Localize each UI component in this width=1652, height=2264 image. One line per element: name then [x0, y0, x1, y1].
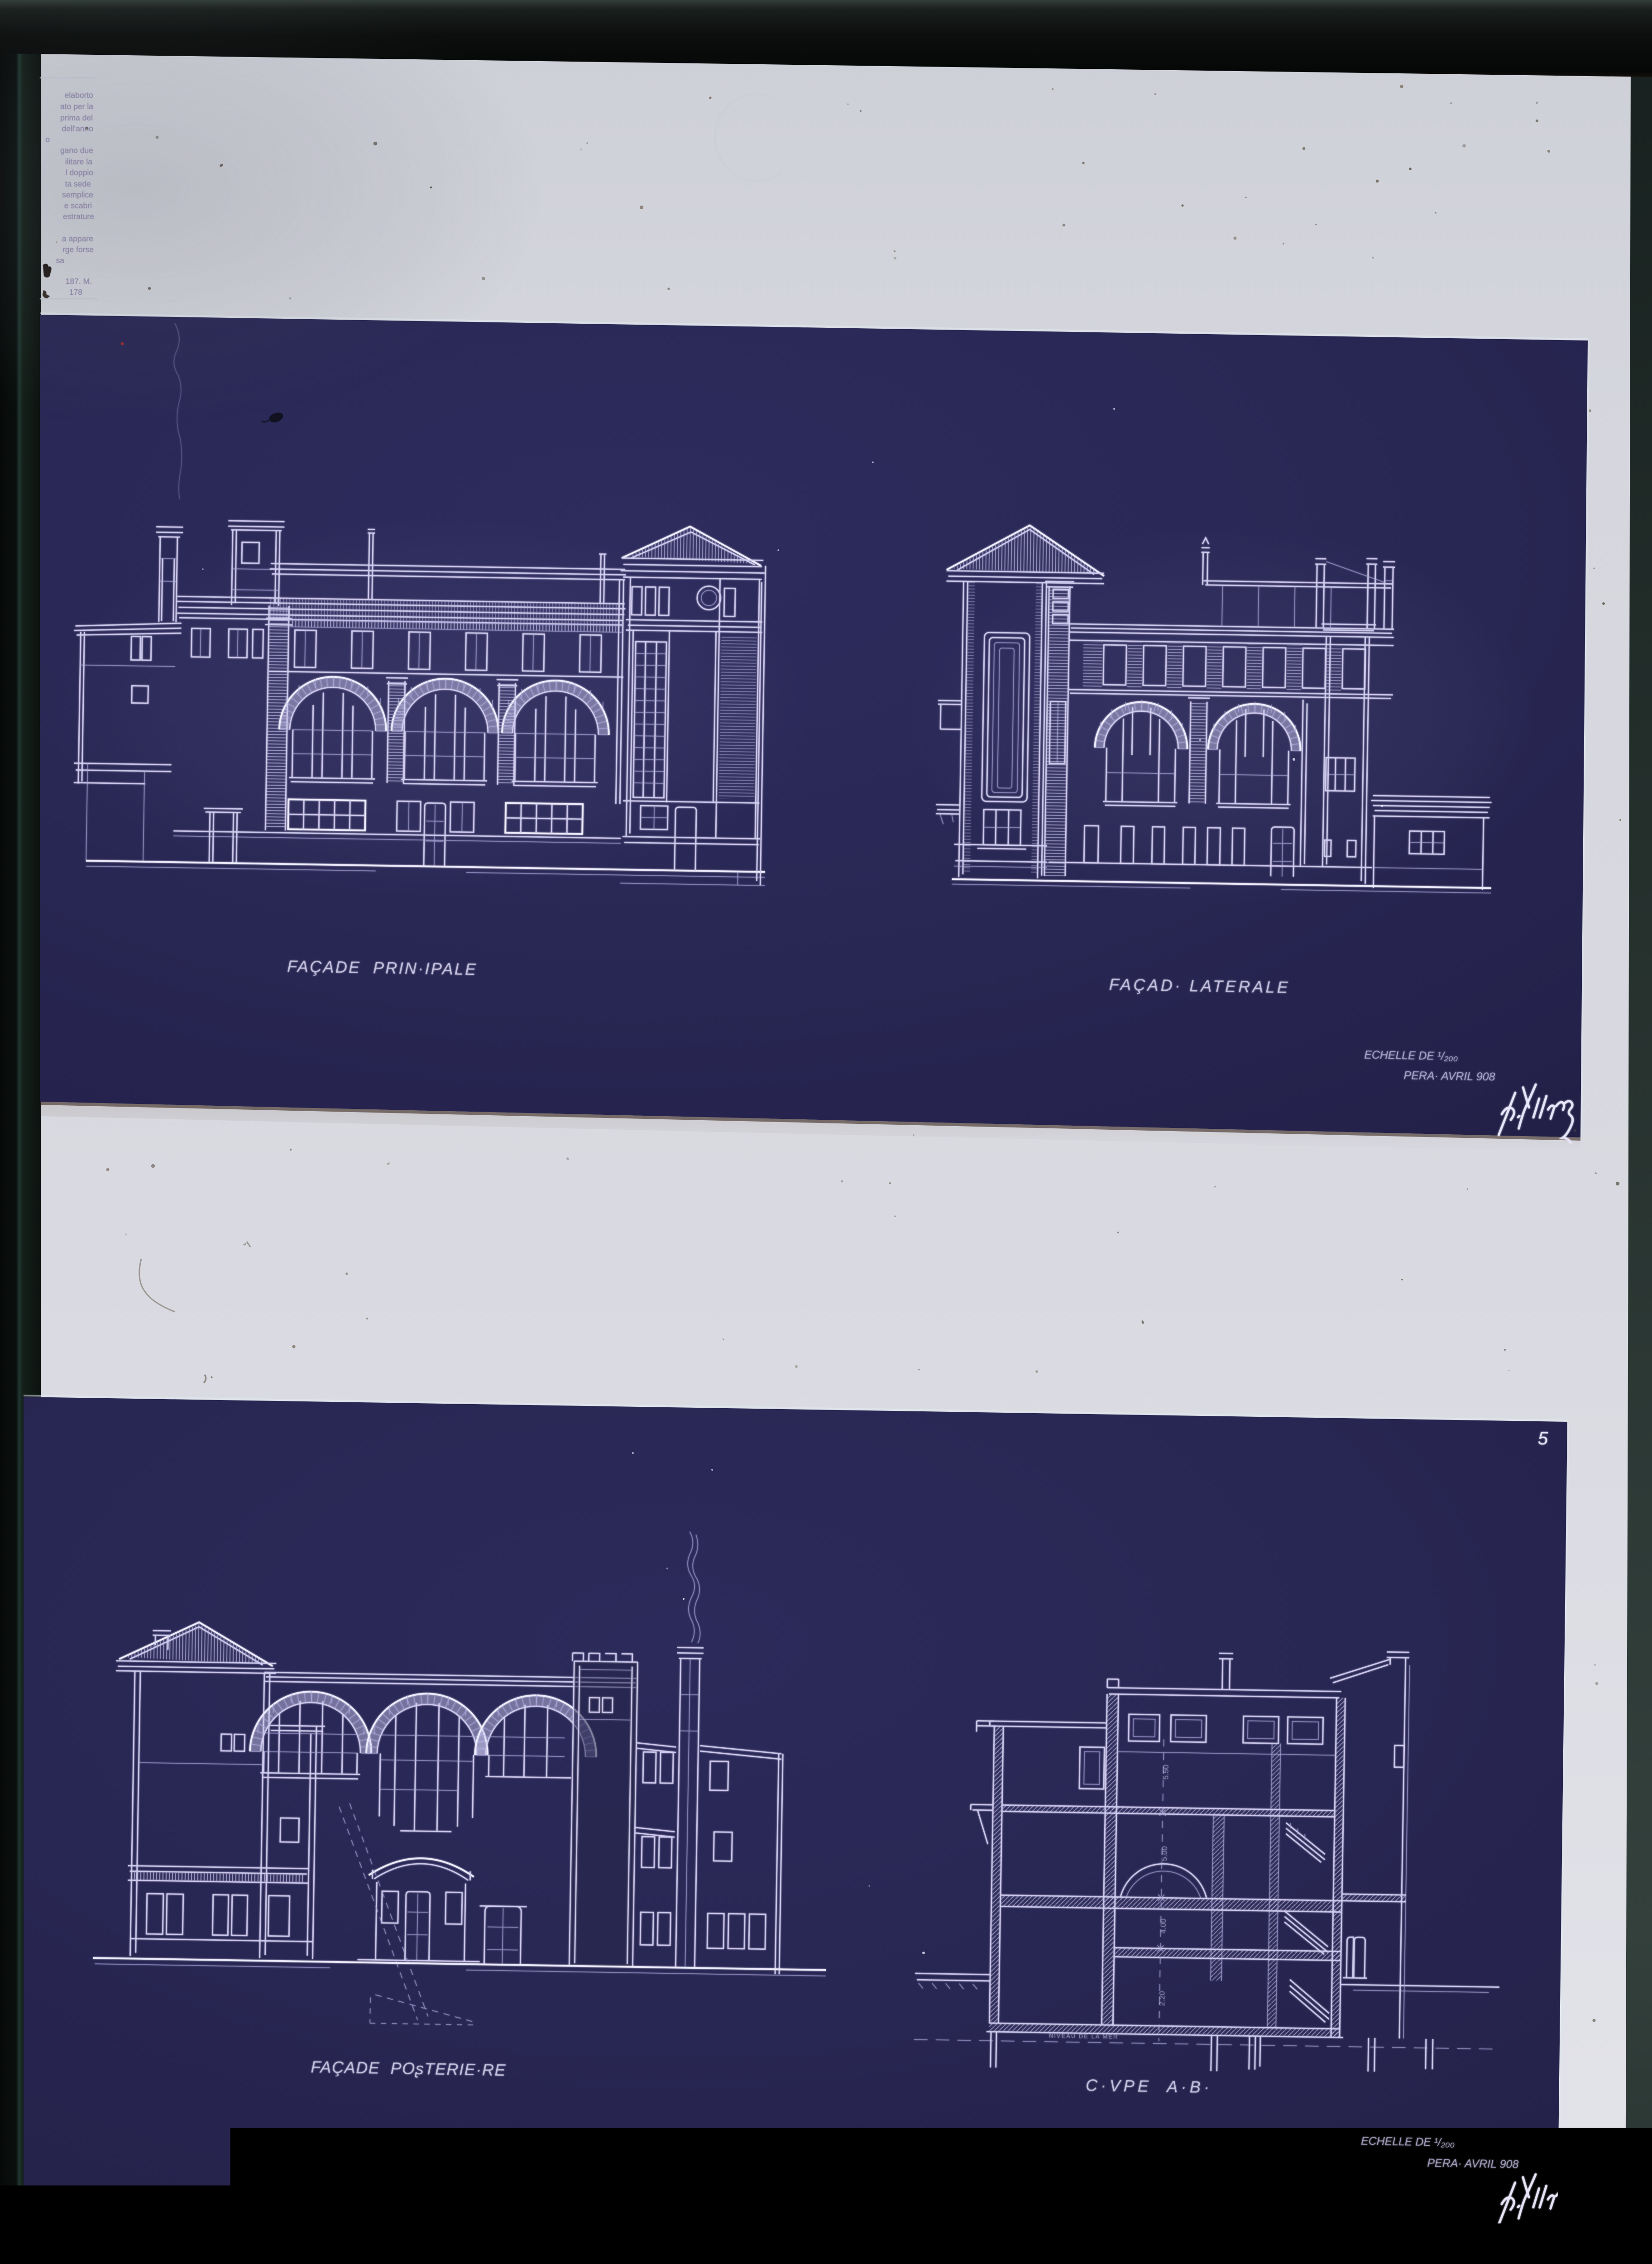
svg-text:prima del: prima del: [60, 113, 93, 122]
svg-text:5.50: 5.50: [1161, 1765, 1170, 1780]
svg-text:FAÇADE POʂTERIE·RE: FAÇADE POʂTERIE·RE: [311, 2058, 508, 2079]
svg-text:dell'anno: dell'anno: [62, 124, 93, 133]
svg-text:PERA· AVRIL 908: PERA· AVRIL 908: [1427, 2157, 1520, 2171]
svg-text:gano due: gano due: [60, 146, 93, 155]
svg-text:e scabri: e scabri: [64, 201, 92, 210]
svg-text:rge forse: rge forse: [62, 245, 94, 254]
svg-text:ECHELLE DE ¹/₂₀₀: ECHELLE DE ¹/₂₀₀: [1364, 1049, 1459, 1063]
svg-text:NIVEAU DE LA MER: NIVEAU DE LA MER: [1049, 2032, 1119, 2040]
svg-text:2.20: 2.20: [1158, 1991, 1167, 2006]
svg-text:5.00: 5.00: [1160, 1846, 1169, 1861]
svg-text:o: o: [45, 135, 50, 144]
svg-text:PERA· AVRIL 908: PERA· AVRIL 908: [1403, 1069, 1496, 1083]
svg-text:l doppio: l doppio: [66, 168, 93, 177]
svg-text:ato per la: ato per la: [60, 102, 93, 111]
svg-text:estrature: estrature: [63, 212, 94, 221]
svg-text:FAÇAD· LATERALE: FAÇAD· LATERALE: [1109, 975, 1290, 997]
svg-text:178: 178: [69, 288, 82, 297]
svg-text:C·VPE A·B·: C·VPE A·B·: [1086, 2076, 1213, 2096]
svg-text:5: 5: [1538, 1429, 1549, 1449]
svg-text:ilitare la: ilitare la: [65, 157, 93, 166]
svg-text:FAÇADE PRIN·IPALE: FAÇADE PRIN·IPALE: [287, 957, 479, 979]
svg-text:4.00: 4.00: [1159, 1919, 1168, 1933]
svg-text:sa: sa: [56, 256, 65, 265]
svg-text:ta sede: ta sede: [65, 179, 91, 188]
svg-text:elaborto: elaborto: [65, 91, 93, 100]
svg-text:ECHELLE DE ¹/₂₀₀: ECHELLE DE ¹/₂₀₀: [1361, 2135, 1456, 2149]
svg-text:187. M.: 187. M.: [66, 277, 92, 286]
svg-text:semplice: semplice: [62, 190, 93, 199]
svg-text:a appare: a appare: [62, 234, 93, 243]
